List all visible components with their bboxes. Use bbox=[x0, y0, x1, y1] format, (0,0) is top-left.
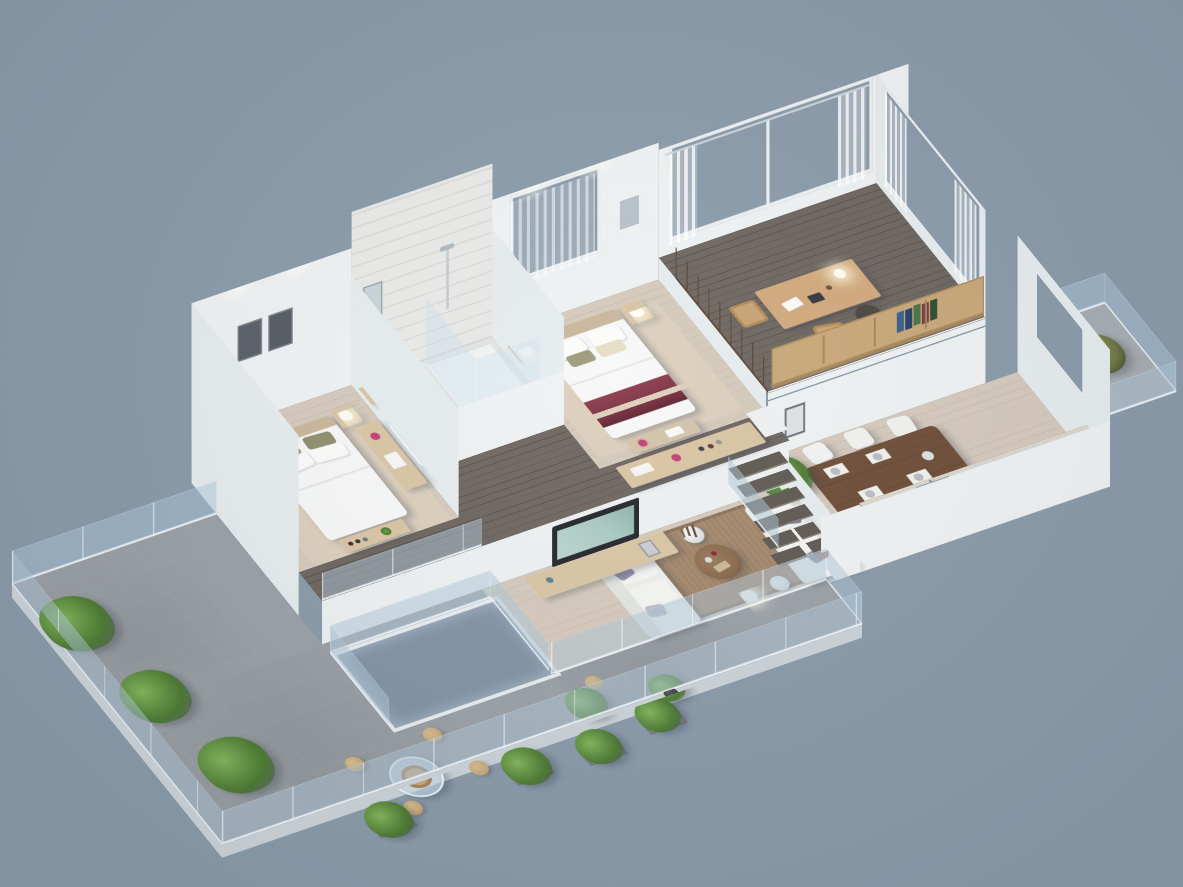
wall-frame-right bbox=[268, 307, 292, 351]
loft-curtain-left bbox=[669, 144, 697, 246]
desk-papers bbox=[781, 296, 804, 311]
placemat bbox=[865, 448, 892, 464]
dining-wall-frame bbox=[785, 402, 805, 439]
decanter bbox=[703, 556, 714, 563]
flower-bouquet-pink bbox=[669, 453, 683, 463]
mini-plant bbox=[379, 526, 394, 536]
pen-holder bbox=[825, 285, 833, 291]
decor-bottles bbox=[697, 446, 705, 452]
desk-tablet bbox=[807, 292, 826, 304]
flower-bouquet-pink bbox=[636, 439, 649, 448]
wall-frame-left bbox=[238, 318, 262, 362]
center-bowl bbox=[919, 450, 936, 462]
books-row bbox=[897, 311, 904, 334]
wine-bottles bbox=[347, 541, 354, 546]
tray-white bbox=[383, 451, 407, 469]
wine-bottle-red bbox=[710, 550, 718, 556]
tray-white bbox=[629, 462, 655, 476]
tray bbox=[713, 560, 732, 572]
photo-frame bbox=[637, 540, 661, 558]
floor-plan-render bbox=[0, 0, 1183, 887]
shelf-divider bbox=[823, 335, 825, 364]
loft-window-mullion bbox=[766, 119, 769, 208]
shower-pipe bbox=[446, 246, 449, 309]
master-wall-frame bbox=[618, 192, 641, 233]
flower-bouquet-pink bbox=[368, 431, 382, 441]
decor-vase-small bbox=[544, 576, 555, 583]
folded-towel bbox=[664, 426, 685, 438]
loft-curtain-right bbox=[838, 86, 866, 188]
